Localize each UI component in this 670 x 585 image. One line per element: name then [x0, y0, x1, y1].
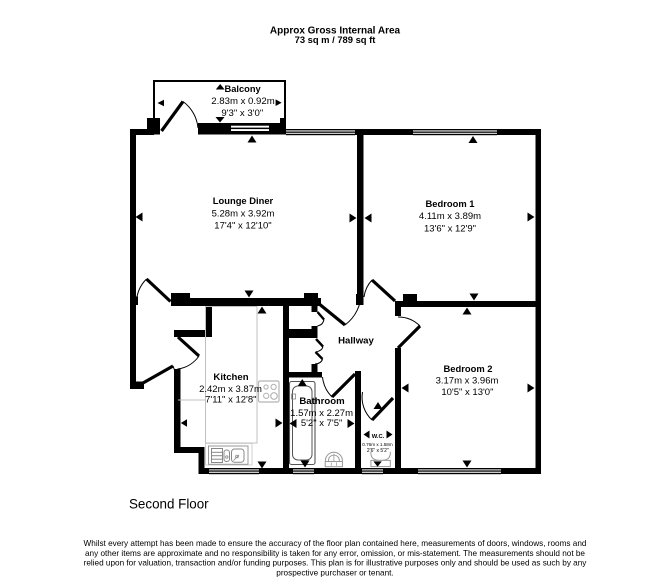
svg-text:Kitchen: Kitchen — [213, 372, 248, 383]
svg-text:5.28m x 3.92m: 5.28m x 3.92m — [212, 208, 275, 219]
svg-text:W.C.: W.C. — [372, 434, 385, 440]
svg-text:4.11m x 3.89m: 4.11m x 3.89m — [419, 211, 481, 222]
svg-text:9'3" x 3'0": 9'3" x 3'0" — [221, 108, 263, 119]
svg-text:any other items are approximat: any other items are approximate and no r… — [85, 549, 585, 558]
svg-text:prospective purchaser or tenan: prospective purchaser or tenant. — [276, 568, 393, 577]
svg-text:Second Floor: Second Floor — [129, 497, 209, 512]
svg-text:Lounge Diner: Lounge Diner — [213, 195, 274, 206]
svg-text:Hallway: Hallway — [338, 336, 374, 347]
svg-text:Bathroom: Bathroom — [299, 396, 344, 407]
svg-text:Whilst every attempt has been: Whilst every attempt has been made to en… — [84, 539, 587, 548]
svg-text:Bedroom 2: Bedroom 2 — [444, 363, 493, 374]
svg-text:2.83m x 0.92m: 2.83m x 0.92m — [211, 96, 274, 107]
svg-text:Balcony: Balcony — [225, 84, 262, 94]
svg-text:2.42m x 3.87m: 2.42m x 3.87m — [199, 384, 262, 395]
svg-text:2'6" x 5'2": 2'6" x 5'2" — [367, 448, 389, 454]
svg-text:73 sq m / 789 sq ft: 73 sq m / 789 sq ft — [295, 34, 376, 45]
svg-text:relied upon for valuation, tra: relied upon for valuation, transaction a… — [84, 559, 588, 568]
svg-text:Bedroom 1: Bedroom 1 — [426, 198, 475, 209]
svg-text:3.17m x 3.96m: 3.17m x 3.96m — [436, 376, 499, 387]
svg-text:13'6" x 12'9": 13'6" x 12'9" — [424, 224, 476, 235]
svg-text:5'2" x 7'5": 5'2" x 7'5" — [301, 418, 343, 429]
svg-text:17'4" x 12'10": 17'4" x 12'10" — [214, 221, 271, 232]
svg-text:7'11" x 12'8": 7'11" x 12'8" — [205, 395, 256, 406]
svg-text:0.76m x 1.58m: 0.76m x 1.58m — [362, 442, 393, 447]
svg-text:10'5" x 13'0": 10'5" x 13'0" — [441, 387, 493, 398]
